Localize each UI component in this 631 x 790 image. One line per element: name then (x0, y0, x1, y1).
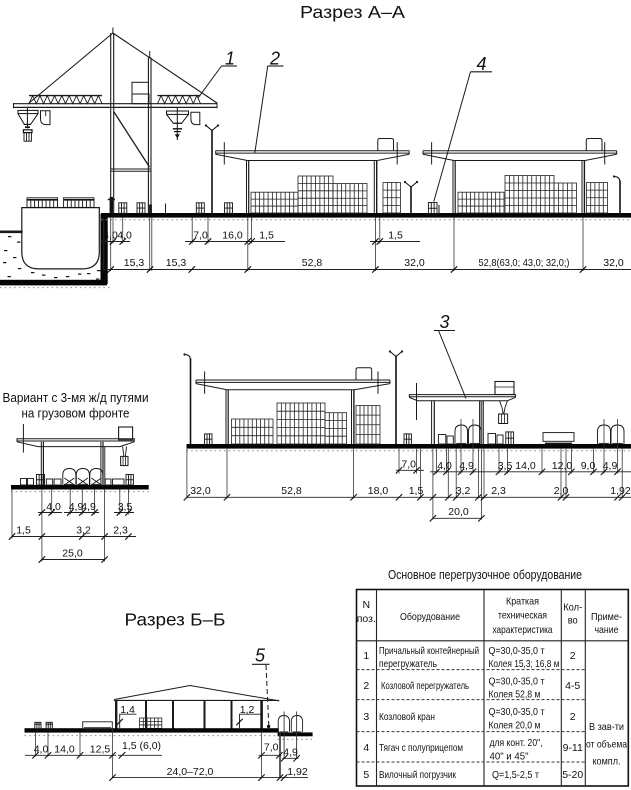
svg-text:Кол-: Кол- (563, 602, 582, 614)
svg-text:Разрез А–А: Разрез А–А (300, 2, 405, 22)
svg-text:52,8: 52,8 (302, 257, 323, 269)
svg-text:32,0: 32,0 (603, 257, 624, 269)
svg-text:32,0: 32,0 (190, 485, 211, 497)
svg-text:1,5: 1,5 (16, 525, 31, 537)
svg-text:1,5: 1,5 (409, 485, 424, 497)
svg-text:1,5: 1,5 (259, 230, 274, 242)
svg-text:N: N (363, 599, 371, 611)
svg-text:3: 3 (439, 312, 449, 332)
svg-text:4,9: 4,9 (81, 501, 96, 513)
svg-text:от объема: от объема (586, 739, 627, 751)
svg-text:3,2: 3,2 (76, 525, 91, 537)
svg-text:4,0: 4,0 (46, 501, 61, 513)
svg-text:1,92: 1,92 (610, 485, 631, 497)
svg-text:4,0: 4,0 (34, 744, 49, 756)
svg-text:3,2: 3,2 (456, 485, 471, 497)
svg-text:Вариант с 3-мя ж/д путями: Вариант с 3-мя ж/д путями (3, 390, 149, 405)
svg-text:4-5: 4-5 (565, 680, 580, 692)
svg-text:2: 2 (363, 680, 369, 692)
svg-text:Основное перегрузочное оборудо: Основное перегрузочное оборудование (388, 567, 582, 582)
svg-text:1,92: 1,92 (287, 766, 308, 778)
svg-text:2,0: 2,0 (554, 485, 569, 497)
svg-text:12,5: 12,5 (90, 744, 111, 756)
svg-text:Оборудование: Оборудование (400, 611, 460, 623)
svg-text:компл.: компл. (593, 757, 621, 768)
svg-text:Козловой перегружатель: Козловой перегружатель (381, 681, 469, 692)
svg-text:Колея 52,8 м: Колея 52,8 м (489, 690, 541, 701)
svg-text:перегружатель: перегружатель (379, 659, 437, 670)
svg-text:поз.: поз. (357, 613, 376, 625)
svg-text:1,5: 1,5 (388, 230, 403, 242)
svg-text:Приме-: Приме- (591, 611, 622, 623)
svg-text:Колея 20,0 м: Колея 20,0 м (489, 721, 541, 732)
svg-text:Q=30,0-35,0 т: Q=30,0-35,0 т (489, 707, 545, 718)
svg-text:на грузовом фронте: на грузовом фронте (22, 406, 130, 421)
svg-text:14,0: 14,0 (515, 460, 536, 472)
svg-text:Краткая: Краткая (506, 596, 539, 608)
svg-text:9,0: 9,0 (581, 460, 596, 472)
svg-text:4: 4 (476, 54, 486, 74)
svg-text:18,0: 18,0 (368, 485, 389, 497)
svg-text:2: 2 (570, 711, 576, 723)
svg-text:24,0–72,0: 24,0–72,0 (167, 766, 214, 778)
svg-text:4,0: 4,0 (437, 460, 452, 472)
svg-text:Q=1,5-2,5 т: Q=1,5-2,5 т (492, 770, 539, 781)
svg-text:2,3: 2,3 (113, 525, 128, 537)
svg-text:3,5: 3,5 (118, 501, 133, 513)
svg-text:3: 3 (363, 711, 369, 723)
svg-text:техническая: техническая (498, 610, 547, 622)
svg-text:16,0: 16,0 (222, 230, 243, 242)
svg-text:15,3: 15,3 (166, 257, 187, 269)
svg-text:5: 5 (255, 646, 266, 666)
svg-text:14,0: 14,0 (54, 744, 75, 756)
svg-text:4,0: 4,0 (117, 230, 132, 242)
svg-text:Q=30,0-35,0 т: Q=30,0-35,0 т (489, 646, 545, 657)
svg-text:характеристика: характеристика (493, 624, 553, 636)
svg-text:5-20: 5-20 (562, 769, 583, 781)
svg-text:4: 4 (363, 742, 369, 754)
svg-text:1,5 (6,0): 1,5 (6,0) (122, 740, 161, 752)
svg-text:4,9: 4,9 (603, 460, 618, 472)
svg-text:25,0: 25,0 (62, 548, 83, 560)
svg-text:3,5: 3,5 (498, 460, 513, 472)
svg-text:7,0: 7,0 (264, 742, 279, 754)
svg-text:Козловой кран: Козловой кран (379, 712, 435, 723)
svg-text:9-11: 9-11 (563, 742, 583, 754)
svg-text:52,8: 52,8 (281, 485, 302, 497)
svg-text:Тягач с полуприцепом: Тягач с полуприцепом (379, 743, 463, 754)
svg-text:2,3: 2,3 (491, 485, 506, 497)
svg-text:во: во (568, 615, 578, 627)
svg-text:чание: чание (595, 624, 619, 636)
svg-text:40" и 45": 40" и 45" (490, 752, 529, 763)
svg-text:20,0: 20,0 (448, 506, 469, 518)
svg-text:Q=30,0-35,0 т: Q=30,0-35,0 т (489, 677, 545, 688)
svg-text:52,8(63,0; 43,0; 32,0;): 52,8(63,0; 43,0; 32,0;) (479, 257, 570, 269)
svg-text:4,9: 4,9 (283, 747, 298, 759)
svg-text:В зав-ти: В зав-ти (589, 722, 624, 733)
svg-text:Разрез Б–Б: Разрез Б–Б (125, 610, 226, 630)
svg-text:4,9: 4,9 (459, 460, 474, 472)
svg-text:Колея 15,3; 16,8 м: Колея 15,3; 16,8 м (489, 659, 560, 670)
svg-text:7,0: 7,0 (193, 230, 208, 242)
svg-text:4,0: 4,0 (103, 230, 118, 242)
svg-text:7,0: 7,0 (401, 459, 416, 471)
svg-text:12,0: 12,0 (552, 460, 573, 472)
svg-text:1: 1 (363, 650, 369, 662)
svg-text:2: 2 (570, 650, 576, 662)
svg-text:для конт. 20",: для конт. 20", (490, 738, 543, 749)
svg-text:32,0: 32,0 (404, 257, 425, 269)
svg-text:Вилочный погрузчик: Вилочный погрузчик (379, 770, 456, 781)
svg-text:5: 5 (363, 769, 369, 781)
svg-text:Причальный контейнерный: Причальный контейнерный (379, 646, 479, 657)
svg-text:15,3: 15,3 (124, 257, 145, 269)
